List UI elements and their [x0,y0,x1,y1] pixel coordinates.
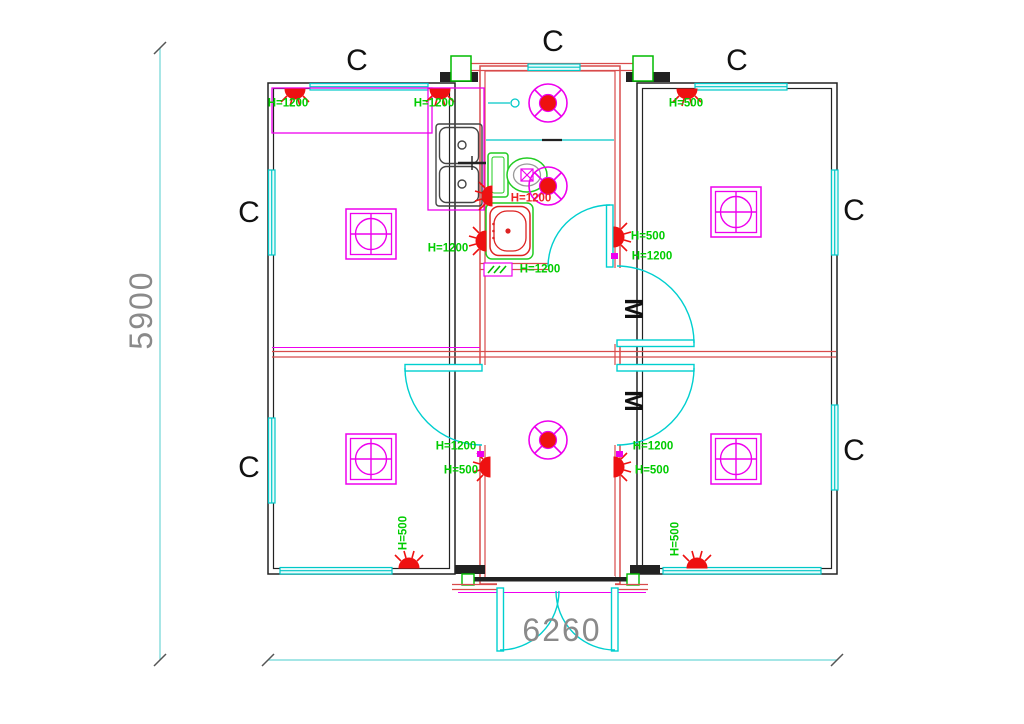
wall-lamp-icon [281,89,309,106]
wash-basin [486,203,533,259]
ceiling-lamp-icon [711,434,761,484]
switch-panel [484,263,512,276]
swing-doors [405,205,694,445]
ceiling-lamp-icon [346,209,396,259]
wall-lamp-icon [614,223,631,251]
ceiling-lamp-icon [346,434,396,484]
wall-lamp-icon [683,551,711,568]
wall-lamp-icon [673,89,701,106]
left-wing-walls [268,83,455,574]
entrance-double-door [497,588,618,651]
wall-lamp-icon [395,551,423,568]
kitchen-counter [272,88,484,210]
ceiling-lamp-icon [711,187,761,237]
kitchen-sink [436,124,486,206]
middle-partition-wall [272,348,836,358]
wall-lamp-icon [614,453,631,481]
door-openings [476,268,624,588]
exhaust-fan-icon [529,421,567,459]
junction-marks [477,253,623,457]
wall-lamp-icon [473,453,490,481]
toilet [488,153,547,197]
wall-lamp-icon [469,227,486,255]
fan-wire [488,99,519,107]
wall-end-caps [440,72,670,582]
floor-plan-drawing [0,0,1024,724]
exhaust-fan-icon [529,84,567,122]
floor-plan-canvas: CCCCCCCMMH=1200H=1200H=500H=1200H=1200H=… [0,0,1024,724]
right-wing-walls [637,83,837,574]
